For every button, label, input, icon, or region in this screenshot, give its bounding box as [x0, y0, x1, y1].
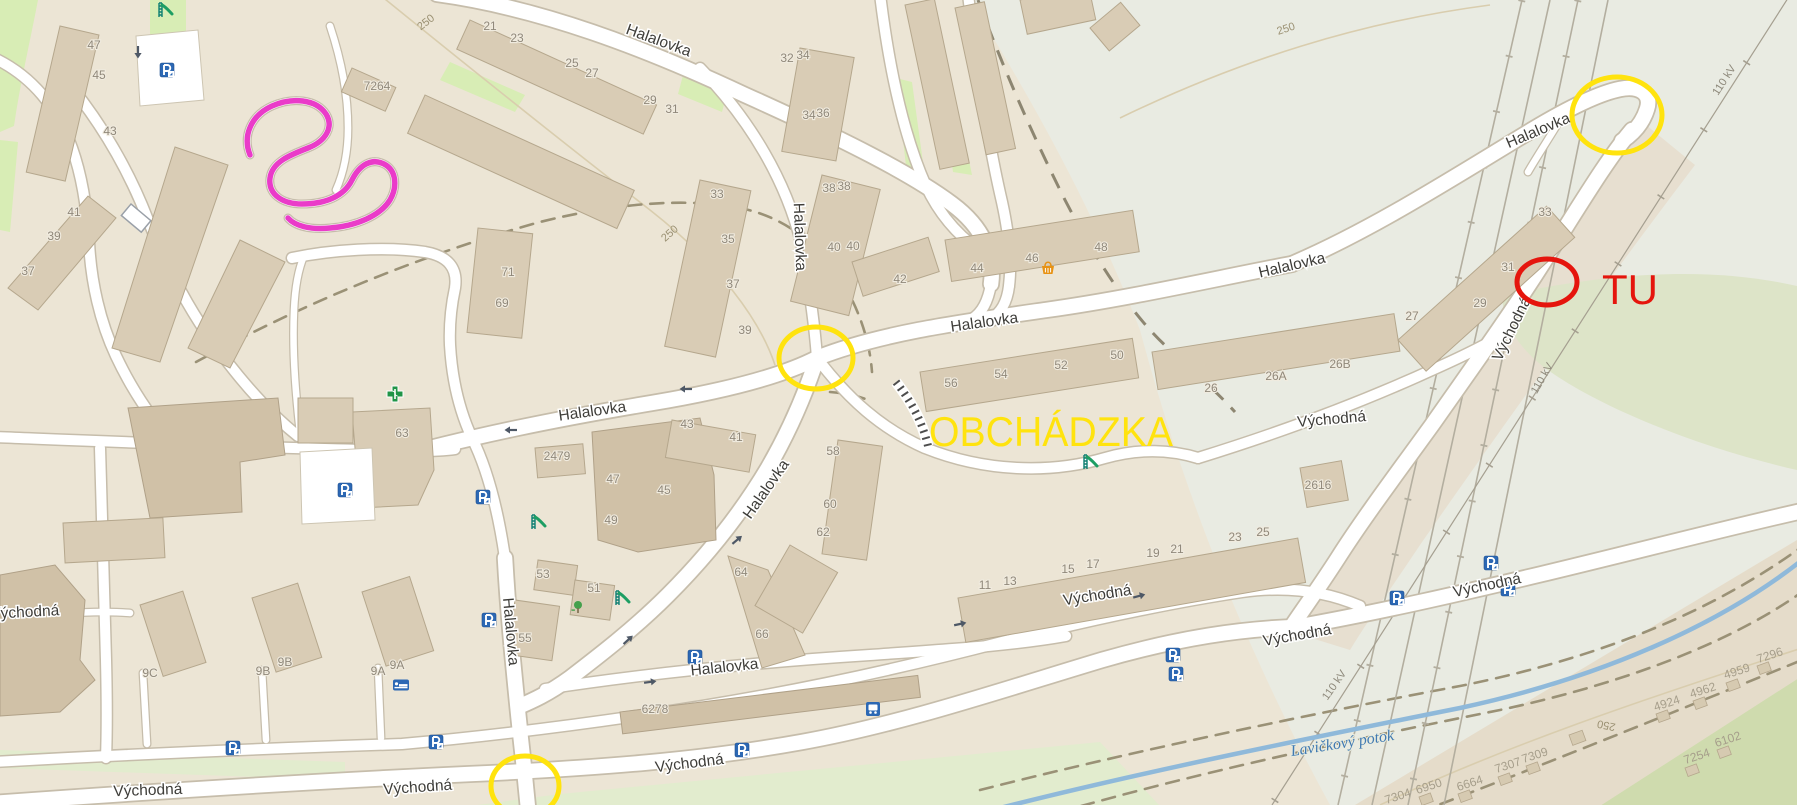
building: [298, 398, 353, 443]
building-number: 21: [483, 19, 497, 33]
building-number: 2616: [1305, 478, 1332, 492]
parking-icon[interactable]: [429, 735, 443, 749]
building-number: 63: [395, 426, 409, 440]
building-number: 47: [606, 472, 620, 486]
parking-icon[interactable]: [1166, 648, 1180, 662]
building-number: 9B: [256, 664, 271, 678]
building-number: 26: [1204, 381, 1218, 395]
building-number: 54: [994, 367, 1008, 381]
building-number: 34: [802, 108, 816, 122]
building-number: 56: [944, 376, 958, 390]
building-number: 21: [1170, 542, 1184, 556]
building-number: 64: [734, 565, 748, 579]
building-number: 71: [501, 265, 515, 279]
building-number: 44: [970, 261, 984, 275]
building-number: 9C: [142, 666, 158, 680]
building-number: 49: [604, 513, 618, 527]
building-number: 13: [1003, 574, 1017, 588]
street-label: Východná: [113, 781, 183, 800]
building-number: 7264: [364, 79, 391, 93]
bus-icon[interactable]: [866, 702, 880, 716]
building-number: 66: [755, 627, 769, 641]
building-number: 37: [726, 277, 740, 291]
building-number: 33: [710, 187, 724, 201]
parking-icon[interactable]: [1484, 556, 1498, 570]
parking-icon[interactable]: [160, 63, 174, 77]
building-number: 34: [796, 48, 810, 62]
playground-area: [150, 0, 186, 34]
building-number: 33: [1538, 205, 1552, 219]
building-number: 2479: [544, 449, 571, 463]
bed-icon[interactable]: [393, 680, 409, 691]
building-number: 52: [1054, 358, 1068, 372]
parking-icon[interactable]: [226, 741, 240, 755]
building-number: 32: [780, 51, 794, 65]
building-number: 41: [729, 430, 743, 444]
parking-icon[interactable]: [482, 613, 496, 627]
street-label: Halalovka: [790, 203, 809, 272]
building-number: 41: [67, 205, 81, 219]
building-number: 38: [837, 179, 851, 193]
map-canvas[interactable]: 250250250250 729649594962492461027254730…: [0, 0, 1797, 805]
building-number: 27: [1405, 309, 1419, 323]
building-number: 38: [822, 181, 836, 195]
building-number: 58: [826, 444, 840, 458]
building-number: 19: [1146, 546, 1160, 560]
building-number: 45: [92, 68, 106, 82]
building-number: 40: [846, 239, 860, 253]
parking-icon[interactable]: [735, 743, 749, 757]
parking-icon[interactable]: [1169, 667, 1183, 681]
building-number: 29: [643, 93, 657, 107]
building-number: 39: [738, 323, 752, 337]
building-number: 11: [979, 578, 992, 592]
building-number: 50: [1110, 348, 1124, 362]
building-number: 27: [585, 66, 599, 80]
building-number: 26A: [1265, 369, 1286, 383]
building-number: 47: [87, 38, 101, 52]
building-number: 9A: [390, 658, 405, 672]
building-number: 29: [1473, 296, 1487, 310]
building-number: 53: [536, 567, 550, 581]
parking-icon[interactable]: [1390, 591, 1404, 605]
building-number: 6278: [642, 702, 669, 716]
building-number: 17: [1086, 557, 1100, 571]
building-number: 51: [587, 581, 601, 595]
detour-annotation-text: OBCHÁDZKA: [929, 408, 1173, 455]
building-number: 43: [103, 124, 117, 138]
building-number: 36: [816, 106, 830, 120]
map-viewport[interactable]: 250250250250 729649594962492461027254730…: [0, 0, 1797, 805]
building-number: 35: [721, 232, 735, 246]
building-number: 48: [1094, 240, 1108, 254]
building-number: 25: [1256, 525, 1270, 539]
building-number: 39: [47, 229, 61, 243]
parking-lot: [300, 448, 375, 524]
building-number: 46: [1025, 251, 1039, 265]
here-annotation-text: TU: [1602, 266, 1658, 313]
building-number: 40: [827, 240, 841, 254]
building-number: 9B: [278, 655, 293, 669]
building: [467, 228, 533, 338]
building-number: 25: [565, 56, 579, 70]
building-number: 62: [816, 525, 830, 539]
building-number: 23: [1228, 530, 1242, 544]
building-number: 9A: [371, 664, 386, 678]
building-number: 37: [21, 264, 35, 278]
building-number: 69: [495, 296, 509, 310]
building-number: 31: [665, 102, 679, 116]
building-number: 43: [680, 417, 694, 431]
building-number: 45: [657, 483, 671, 497]
building-number: 15: [1061, 562, 1075, 576]
parking-icon[interactable]: [476, 490, 490, 504]
parking-icon[interactable]: [338, 483, 352, 497]
building-number: 26B: [1329, 357, 1350, 371]
building-number: 23: [510, 31, 524, 45]
building: [63, 518, 165, 563]
building-number: 60: [823, 497, 837, 511]
building-number: 31: [1501, 260, 1515, 274]
building-number: 42: [893, 272, 907, 286]
